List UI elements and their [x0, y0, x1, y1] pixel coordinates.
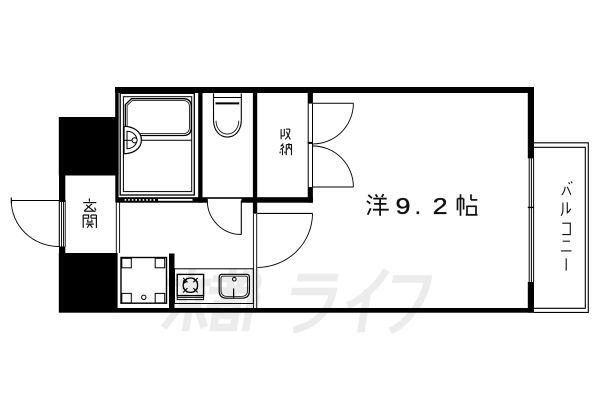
svg-text:.: . [415, 193, 421, 219]
svg-text:9: 9 [396, 194, 411, 220]
svg-text:2: 2 [433, 194, 448, 220]
